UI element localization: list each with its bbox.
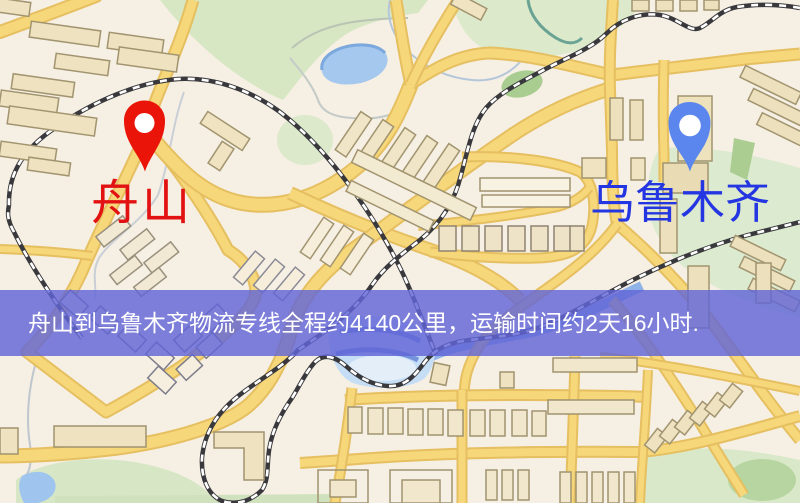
svg-text:舟山: 舟山	[91, 177, 193, 230]
svg-text:舟山到乌鲁木齐物流专线全程约4140公里，运输时间约2天16: 舟山到乌鲁木齐物流专线全程约4140公里，运输时间约2天16小时.	[28, 310, 699, 336]
svg-text:乌鲁木齐: 乌鲁木齐	[590, 177, 770, 228]
